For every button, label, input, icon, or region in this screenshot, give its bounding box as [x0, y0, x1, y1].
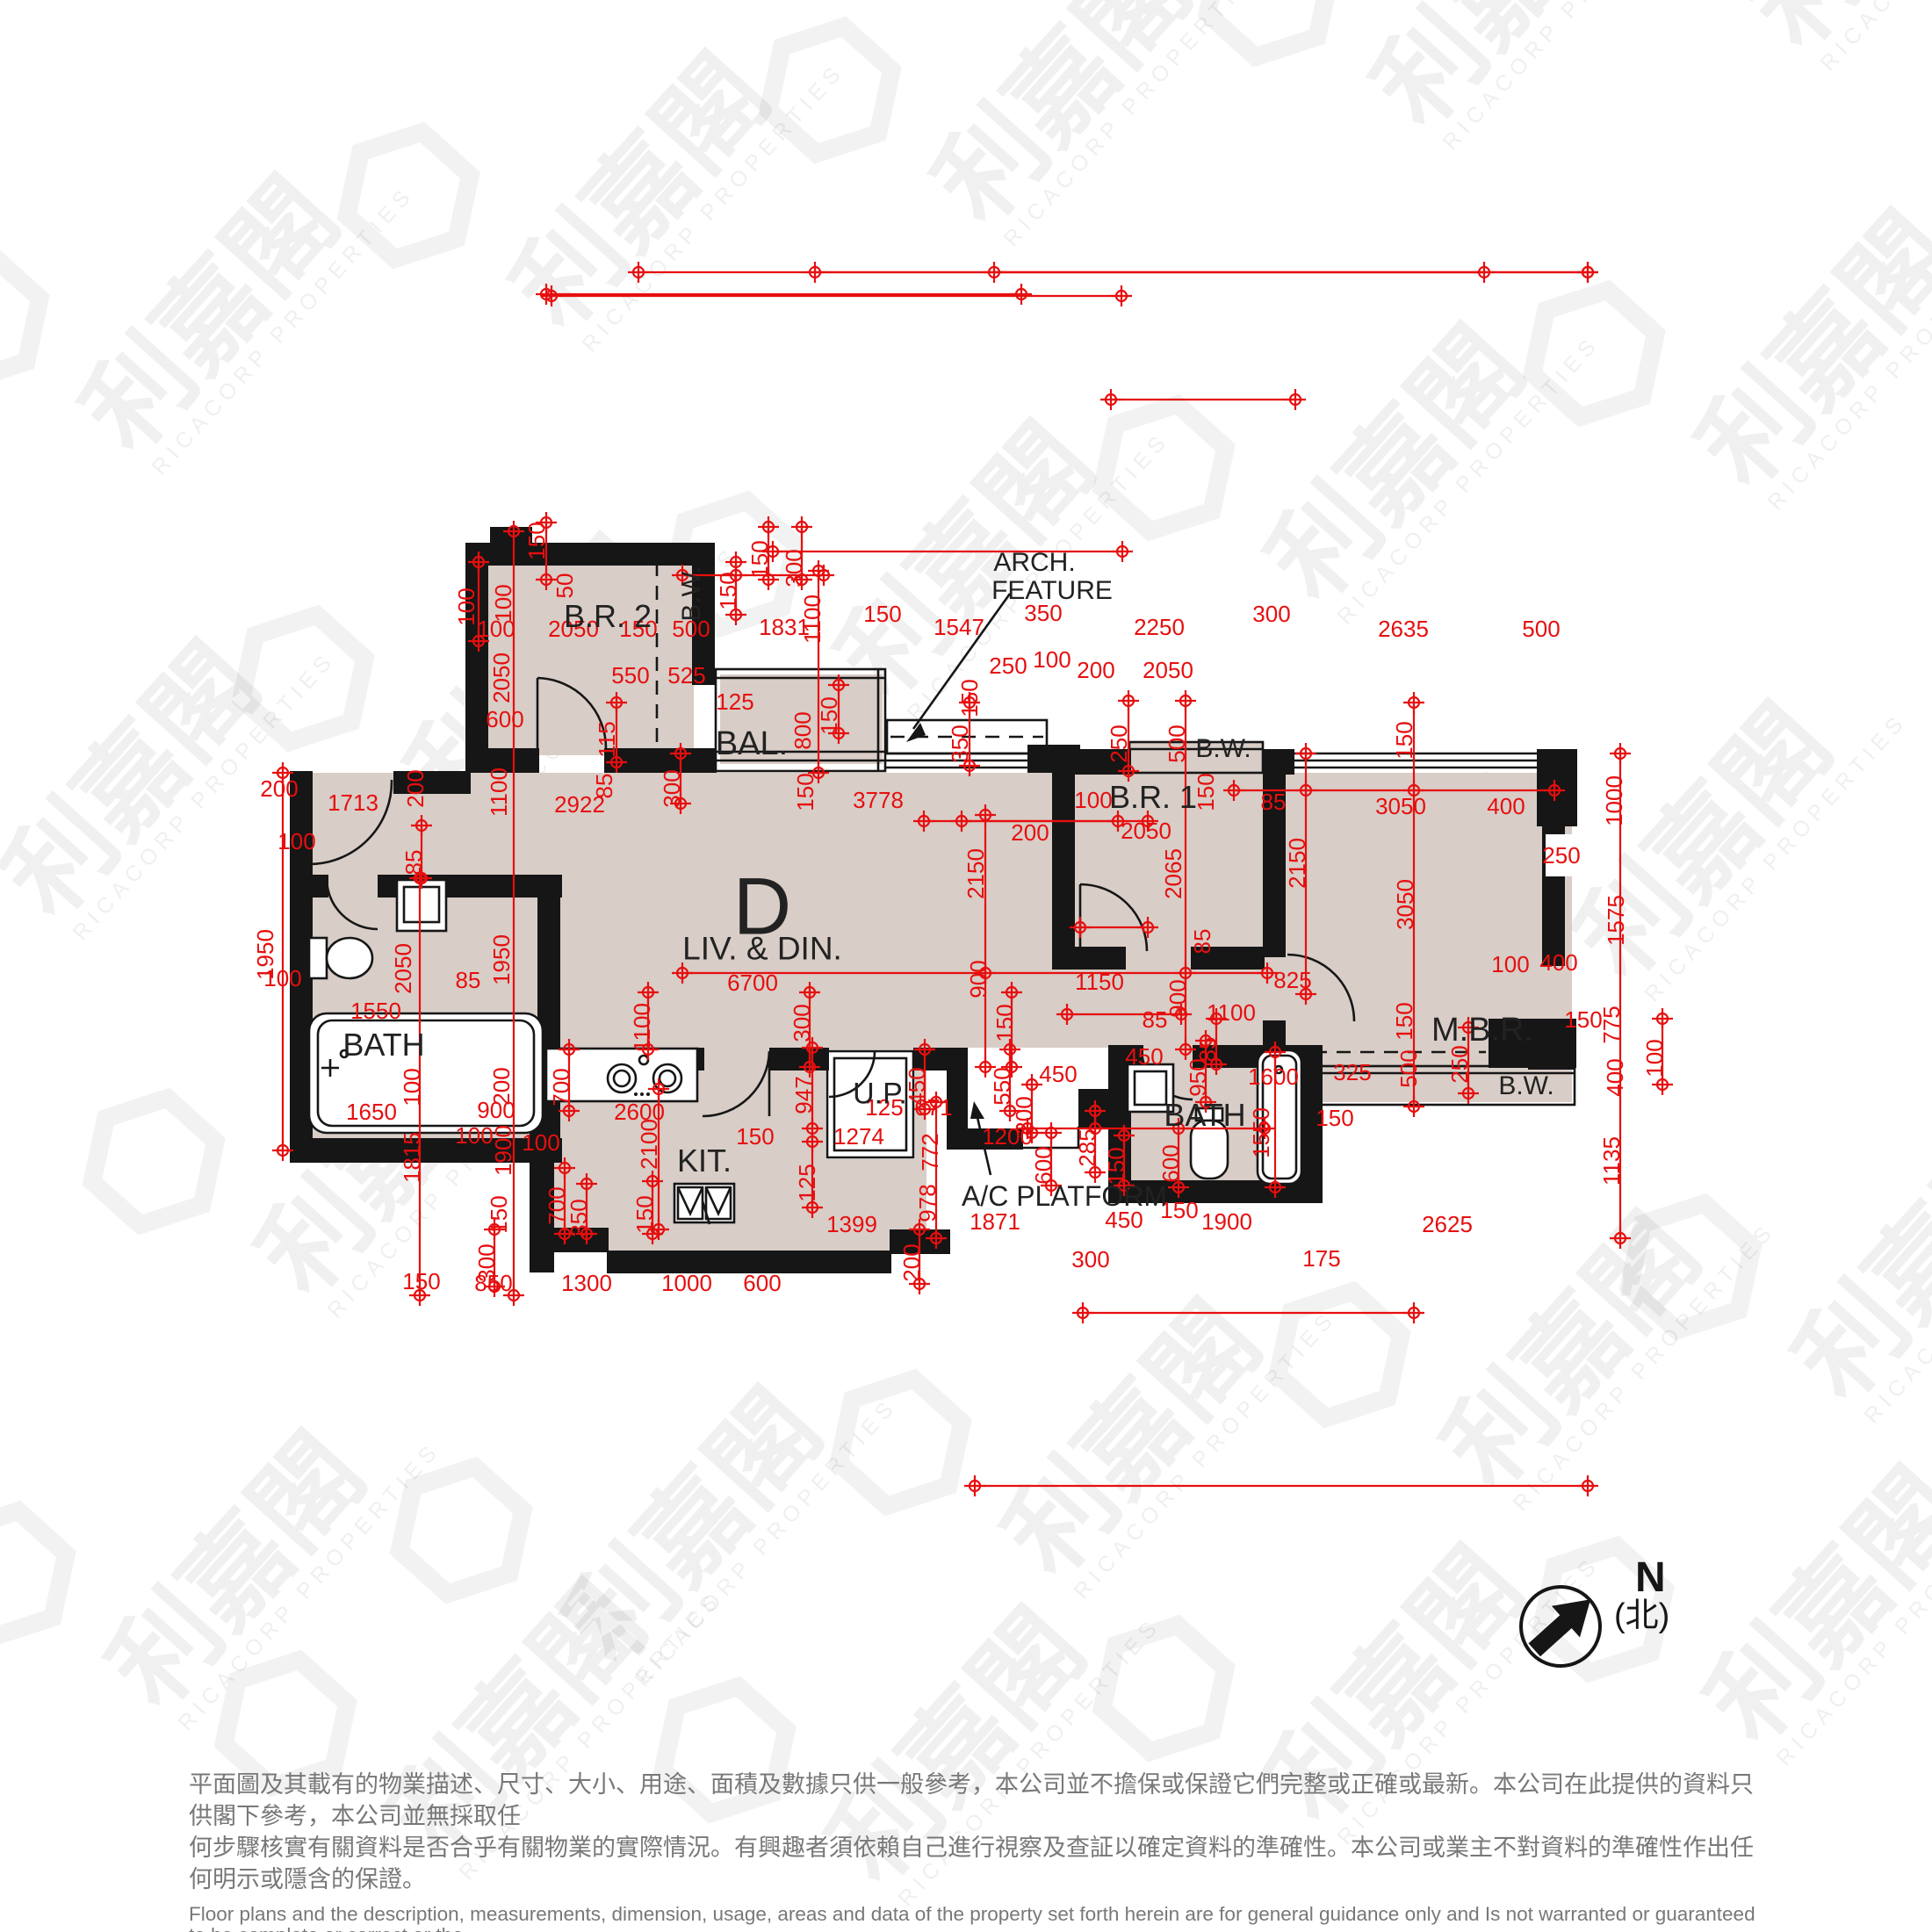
dimension-label: 115: [594, 721, 620, 757]
dimension-label: 150: [816, 696, 842, 734]
dimension-label: 125: [716, 688, 753, 715]
dimension-label: 1300: [561, 1270, 612, 1296]
dimension-label: 150: [402, 1268, 440, 1294]
dimension-label: 300: [1252, 601, 1290, 627]
dimension-label: 85: [456, 967, 481, 993]
dimension-label: 775: [1598, 1006, 1625, 1043]
watermark-tile: 利嘉閣RICACORP PROPERTIES: [1561, 0, 1932, 121]
disclaimer-zh-line1: 平面圖及其載有的物業描述、尺寸、大小、用途、面積及數據只供一般參考，本公司並不擔…: [189, 1771, 1754, 1829]
floorplan-page: 利嘉閣RICACORP PROPERTIES利嘉閣RICACORP PROPER…: [0, 0, 1932, 1932]
dimension-label: 3778: [853, 787, 904, 813]
dimension-label: 200: [402, 769, 429, 807]
dimension-label: 1200: [982, 1123, 1033, 1150]
dimension-label: 85: [1194, 1037, 1221, 1063]
dimension-label: 900: [477, 1097, 515, 1123]
dimension-label: 500: [1522, 616, 1560, 642]
dimension-label: 85: [1189, 929, 1215, 955]
room-label: B.W.: [1498, 1071, 1554, 1100]
dimension-label: 1713: [328, 789, 378, 816]
dimension-label: 2150: [1284, 838, 1310, 889]
dimension-label: 300: [659, 769, 685, 807]
dimension-label: 550: [611, 662, 649, 688]
dimension-label: 1000: [1601, 775, 1627, 826]
dimension-label: 100: [522, 1129, 559, 1156]
dimension-label: 300: [789, 1004, 815, 1042]
dimension-label: 150: [715, 572, 741, 609]
dimension-label: 400: [1602, 1058, 1628, 1096]
dimension-label: 950: [1185, 1058, 1211, 1096]
dimension-label: 600: [1157, 1144, 1184, 1182]
floorplan-drawing: 利嘉閣RICACORP PROPERTIES利嘉閣RICACORP PROPER…: [0, 0, 1932, 1932]
dimension-label: 150: [736, 1123, 774, 1150]
dimension-label: 600: [486, 706, 523, 732]
dimension-label: 200: [1077, 657, 1114, 683]
dimension-label: 450: [1039, 1061, 1077, 1087]
dimension-label: 1135: [1598, 1136, 1625, 1186]
dimension-label: 772: [917, 1133, 943, 1171]
room-label: B.W.: [677, 566, 706, 621]
dimension-label: 100: [455, 1122, 493, 1149]
room-label: BATH: [1164, 1097, 1245, 1133]
dimension-label: 2050: [390, 943, 416, 994]
dimension-label: 1150: [1075, 969, 1124, 995]
dimension-label: 6700: [727, 970, 778, 996]
dimension-label: 671: [914, 1094, 952, 1121]
dimension-label: 1575: [1603, 895, 1629, 946]
compass-n-label: N: [1635, 1554, 1666, 1601]
svg-text:利嘉閣: 利嘉閣: [913, 0, 1212, 243]
dimension-label: 150: [631, 1195, 658, 1233]
disclaimer-en-line1: Floor plans and the description, measure…: [189, 1903, 1755, 1932]
dimension-label: 200: [1011, 819, 1049, 846]
watermark-tile: 利嘉閣RICACORP PROPERTIES: [1078, 139, 1605, 675]
room-label: BAL.: [716, 725, 788, 762]
dimension-label: 250: [1446, 1045, 1473, 1083]
dimension-label: 1900: [1201, 1208, 1252, 1235]
dimension-label: 1547: [934, 614, 984, 640]
compass-north-cn-label: (北): [1614, 1597, 1669, 1634]
dimension-label: 300: [781, 549, 807, 587]
dimension-label: 1000: [661, 1270, 712, 1296]
dimension-label: 1399: [826, 1211, 877, 1237]
dimension-label: 2150: [962, 848, 989, 899]
watermark-tile: 利嘉閣RICACORP PROPERTIES: [1184, 0, 1711, 200]
dimension-label: 150: [1391, 721, 1417, 759]
dimension-label: 2625: [1422, 1211, 1473, 1237]
dimension-label: 1550: [350, 998, 401, 1024]
dimension-label: 400: [1487, 793, 1525, 819]
dimension-label: 1100: [1207, 999, 1256, 1026]
watermark-tile: 利嘉閣RICACORP PROPERTIES: [0, 1245, 445, 1782]
dimension-label: 100: [453, 588, 479, 625]
dimension-label: 1274: [833, 1123, 884, 1150]
dimension-label: 300: [1071, 1246, 1109, 1272]
dimension-label: 150: [523, 522, 550, 559]
dimension-label: 250: [989, 652, 1027, 679]
dimension-label: 525: [667, 662, 705, 688]
dimension-label: 978: [914, 1184, 941, 1222]
dimension-label: 600: [743, 1270, 781, 1296]
dimension-label: 150: [1564, 1006, 1602, 1033]
dimension-label: 175: [1302, 1245, 1340, 1272]
watermark-tile: 利嘉閣RICACORP PROPERTIES: [0, 0, 419, 525]
dimension-label: 3050: [1375, 793, 1426, 819]
dimension-label: 800: [789, 711, 816, 749]
dimension-label: 2050: [1143, 657, 1193, 683]
dimension-label: 150: [991, 1004, 1018, 1042]
dimension-label: 285: [1074, 1128, 1100, 1166]
dimension-label: 850: [474, 1270, 512, 1296]
dimension-label: 250: [1106, 724, 1132, 762]
room-label: U.P.: [853, 1078, 907, 1111]
dimension-label: 600: [1030, 1146, 1056, 1184]
dimension-label: 900: [1164, 979, 1191, 1017]
dimension-label: 200: [898, 1244, 925, 1281]
dimension-label: 700: [548, 1068, 574, 1106]
dimension-label: 85: [1261, 789, 1287, 815]
dimension-label: 2065: [1160, 848, 1186, 899]
dimension-label: 50: [551, 573, 578, 599]
dimension-label: 500: [1395, 1049, 1422, 1087]
dimension-label: 1550: [1248, 1107, 1274, 1158]
dimension-label: 1950: [488, 934, 515, 985]
disclaimer-zh-line2: 何步驟核實有關資料是否合乎有關物業的實際情況。有興趣者須依賴自己進行視察及查証以…: [189, 1835, 1754, 1892]
dimension-label: 350: [566, 1199, 592, 1236]
room-label: FEATURE: [991, 576, 1113, 605]
dimension-label: 350: [947, 724, 973, 762]
room-label: A/C PLATFORM: [962, 1180, 1167, 1212]
room-label: BATH: [342, 1027, 424, 1063]
dimension-label: 100: [399, 1068, 425, 1106]
dimension-label: 2635: [1378, 616, 1429, 642]
dimension-label: 150: [486, 1195, 512, 1233]
dimension-label: 150: [863, 601, 901, 627]
dimension-label: 2250: [1134, 614, 1185, 640]
dimension-label: 825: [1273, 967, 1311, 993]
dimension-label: 2050: [488, 652, 515, 703]
dimension-label: 100: [263, 965, 301, 991]
dimension-label: 150: [746, 540, 773, 578]
dimension-label: 400: [1539, 949, 1577, 976]
dimension-label: 150: [792, 773, 818, 811]
dimension-label: 100: [1641, 1039, 1668, 1077]
dimension-label: 125: [794, 1164, 820, 1201]
dimension-label: 947: [790, 1076, 817, 1114]
dimension-label: 100: [1491, 951, 1529, 977]
room-label: M.B.R.: [1431, 1012, 1533, 1049]
dimension-label: 1831: [759, 614, 810, 640]
dimension-label: 325: [1333, 1059, 1371, 1085]
watermark-tile: 利嘉閣RICACORP PROPERTIES: [1509, 25, 1932, 561]
dimension-label: 1100: [486, 768, 512, 817]
dimension-label: 100: [1033, 646, 1071, 673]
room-label: KIT.: [677, 1143, 732, 1179]
dimension-label: 2922: [554, 791, 605, 818]
dimension-label: 85: [1143, 1006, 1168, 1033]
dimension-label: 500: [1164, 724, 1190, 762]
dimension-label: 150: [1316, 1105, 1353, 1131]
dimension-label: 1650: [346, 1099, 397, 1125]
dimension-label: 85: [400, 850, 427, 876]
dimension-label: 200: [260, 775, 298, 802]
dimension-label: 1600: [1248, 1063, 1299, 1090]
room-label: B.R. 1: [1109, 779, 1197, 815]
dimension-label: 450: [1125, 1043, 1163, 1070]
dimension-label: 100: [477, 616, 515, 642]
dimension-label: 1815: [399, 1132, 425, 1183]
disclaimer: 平面圖及其載有的物業描述、尺寸、大小、用途、面積及數據只供一般參考，本公司並不擔…: [189, 1769, 1761, 1932]
dimension-label: 1900: [490, 1125, 516, 1176]
dimension-label: 900: [965, 960, 991, 998]
room-label: B.R. 2: [564, 598, 652, 634]
room-label: B.W.: [1195, 734, 1251, 763]
watermark-tile: 利嘉閣RICACORP PROPERTIES: [0, 455, 340, 991]
dimension-label: 100: [1074, 787, 1112, 813]
dimension-label: 250: [1542, 842, 1580, 869]
dimension-label: 2050: [1121, 818, 1171, 844]
dimension-label: 1100: [629, 1003, 655, 1052]
dimension-label: 3050: [1392, 879, 1418, 930]
dimension-label: 150: [956, 679, 983, 717]
room-label: ARCH.: [993, 548, 1075, 577]
dimension-label: 1871: [970, 1208, 1020, 1235]
room-label: LIV. & DIN.: [682, 931, 842, 967]
dimension-label: 100: [278, 828, 315, 854]
dimension-label: 150: [1391, 1002, 1417, 1040]
dimension-label: 2100: [636, 1119, 662, 1170]
watermark-tile: 利嘉閣RICACORP PROPERTIES: [745, 0, 1272, 297]
